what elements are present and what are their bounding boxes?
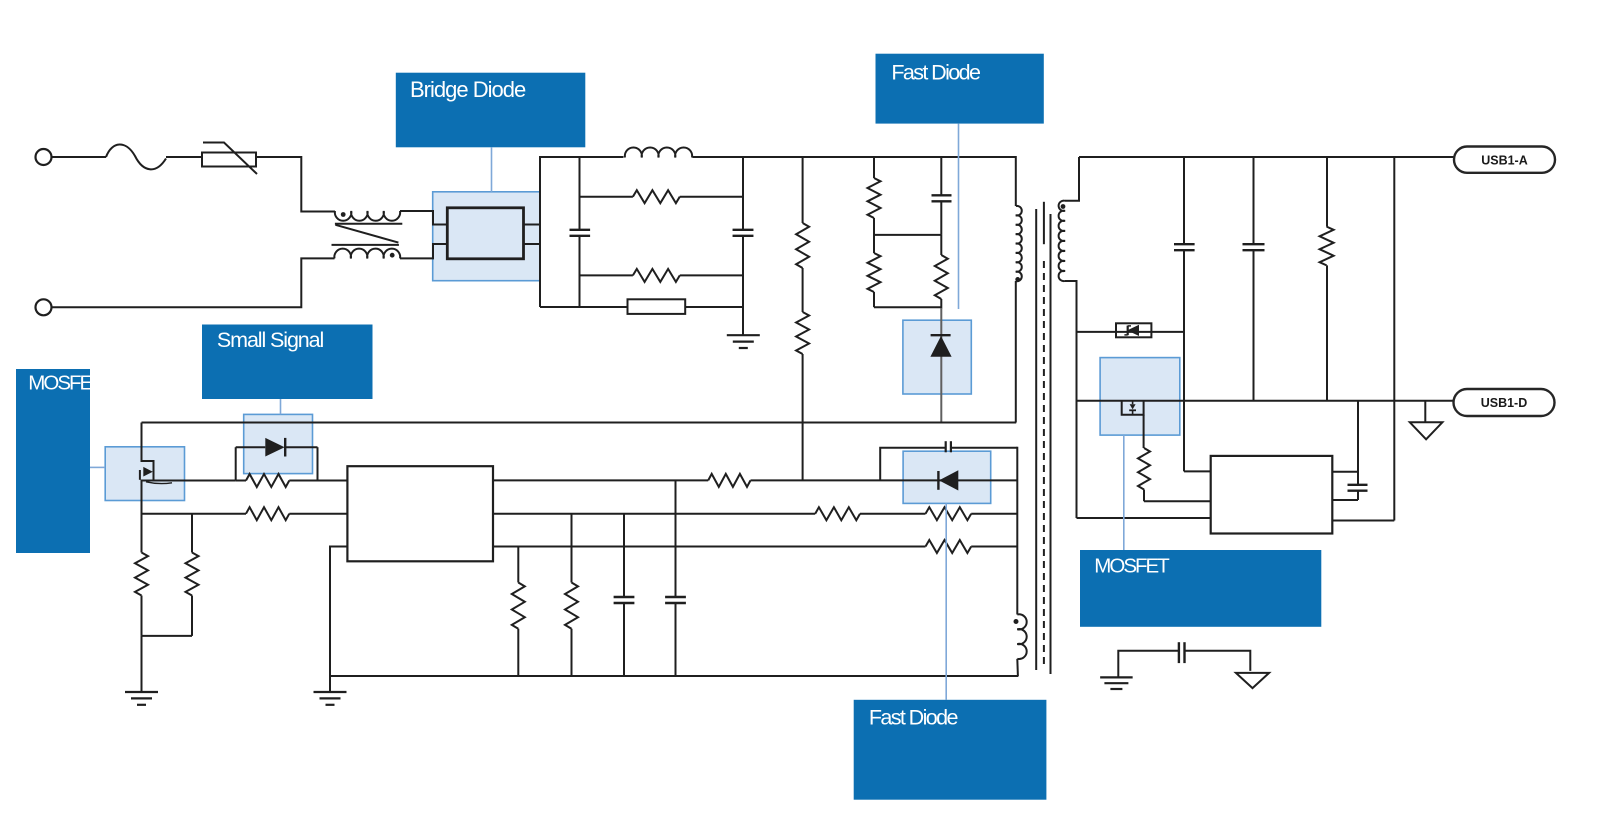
svg-text:USB1-A: USB1-A <box>1481 154 1528 168</box>
svg-text:MOSFET: MOSFET <box>28 372 104 395</box>
svg-text:Fast Diode: Fast Diode <box>869 705 958 729</box>
svg-text:Small Signal: Small Signal <box>217 328 324 352</box>
svg-text:Bridge Diode: Bridge Diode <box>410 77 526 102</box>
svg-text:MOSFET: MOSFET <box>1094 555 1170 578</box>
svg-text:Fast Diode: Fast Diode <box>891 60 980 84</box>
svg-text:USB1-D: USB1-D <box>1481 396 1528 410</box>
